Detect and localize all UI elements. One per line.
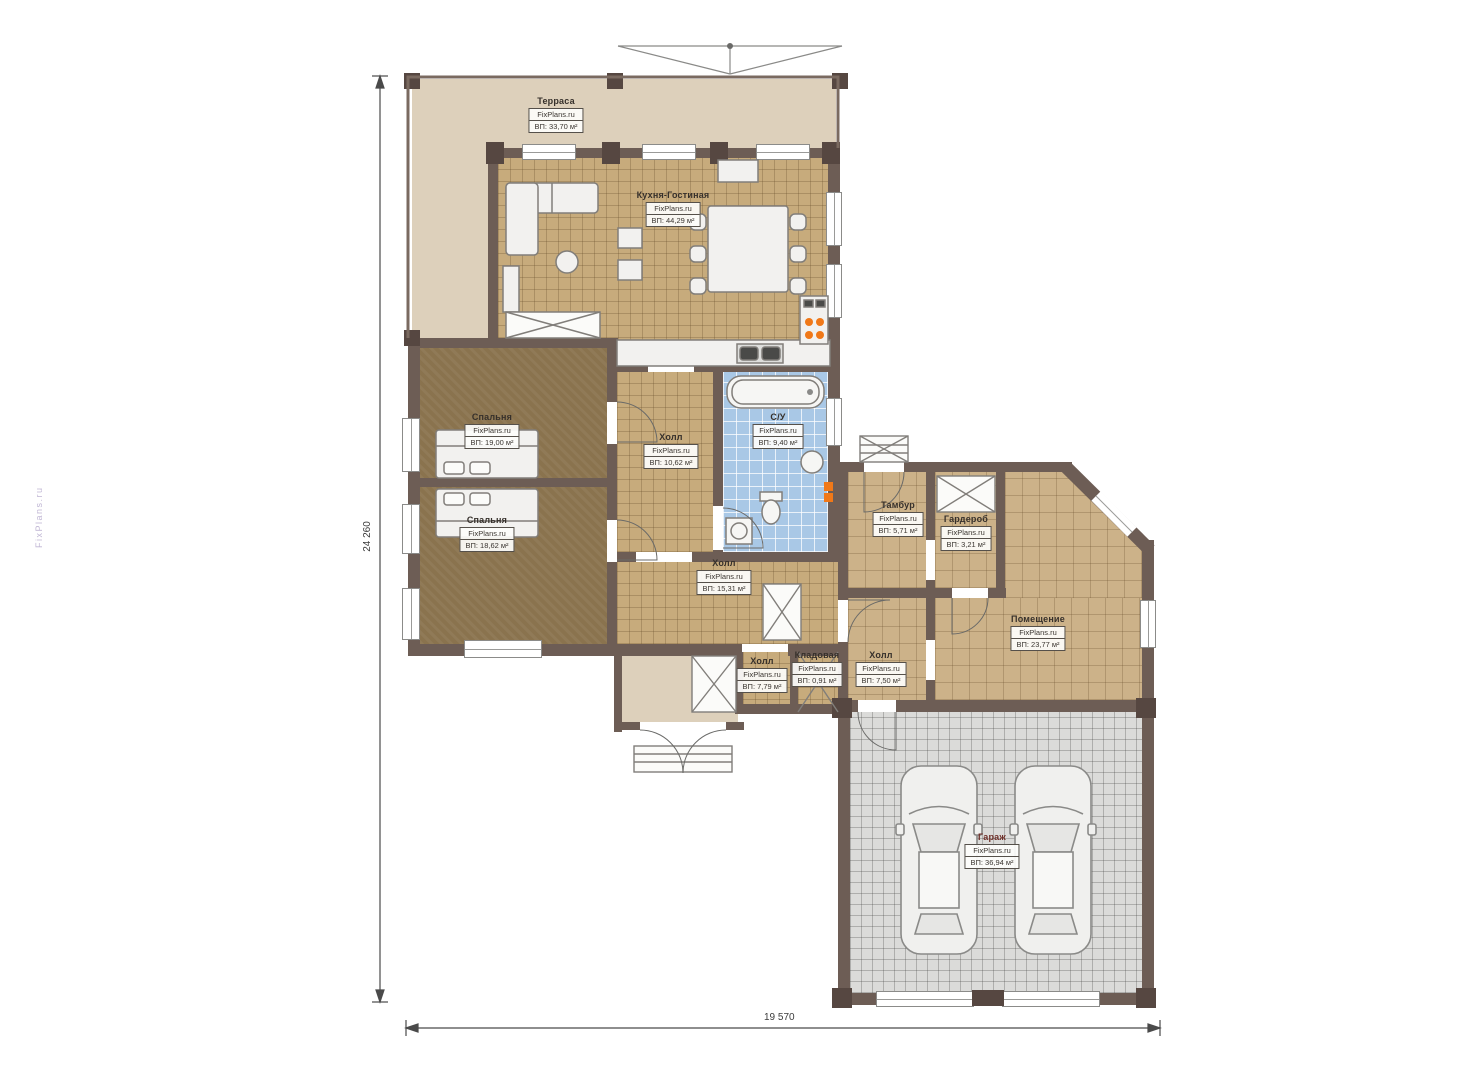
door-opening [858, 700, 896, 712]
canopy-lines [618, 43, 842, 74]
door-opening [636, 552, 692, 562]
pillar [1136, 698, 1156, 718]
porch-steps [634, 746, 732, 772]
room-label-bedroom2: Спальня FixPlans.ruВП: 18,62 м² [459, 515, 514, 553]
wall-segment [607, 362, 838, 372]
wall-segment [607, 338, 617, 654]
pillar [1136, 988, 1156, 1008]
entrance-steps [860, 436, 908, 462]
pillar [832, 988, 852, 1008]
room-kitchen-living-floor [498, 158, 828, 362]
door-opening [648, 362, 694, 372]
pillar [710, 142, 728, 164]
wall-segment [617, 644, 742, 656]
room-label-hall1: Холл FixPlans.ruВП: 10,62 м² [643, 432, 698, 470]
room-label-wardrobe: Гардероб FixPlans.ruВП: 3,21 м² [941, 514, 992, 552]
pillar [486, 142, 504, 164]
door-opening [952, 588, 988, 598]
window [826, 264, 842, 318]
wall-segment [828, 148, 840, 372]
door-opening [607, 520, 617, 562]
room-terrace-floor [412, 148, 488, 338]
window [402, 588, 420, 640]
room-label-bedroom1: Спальня FixPlans.ruВП: 19,00 м² [464, 412, 519, 450]
dimension-height-label: 24 260 [362, 521, 373, 552]
door-opening [640, 722, 726, 730]
door-opening [713, 506, 723, 550]
room-label-hall2: Холл FixPlans.ruВП: 15,31 м² [696, 558, 751, 596]
window [642, 144, 696, 160]
room-utility-floor [1005, 472, 1142, 598]
room-label-bathroom: С/У FixPlans.ruВП: 9,40 м² [753, 412, 804, 450]
door-opening [926, 640, 935, 680]
room-label-pantry: Кладовая FixPlans.ruВП: 0,91 м² [792, 650, 843, 688]
wall-segment [420, 478, 607, 487]
garage-door [1002, 991, 1100, 1007]
floor-plan: Терраса FixPlans.ruВП: 33,70 м² Кухня-Го… [0, 0, 1474, 1080]
porch-floor [622, 656, 738, 726]
room-label-kitchen-living: Кухня-Гостиная FixPlans.ruВП: 44,29 м² [637, 190, 710, 228]
room-label-hall3: Холл FixPlans.ruВП: 7,79 м² [737, 656, 788, 694]
door-opening [607, 402, 617, 444]
wall-segment [408, 338, 618, 348]
pillar [404, 330, 420, 346]
pillar [602, 142, 620, 164]
pillar [404, 73, 420, 89]
door-opening [926, 540, 935, 580]
window [826, 398, 842, 446]
room-label-garage: Гараж FixPlans.ruВП: 36,94 м² [964, 832, 1019, 870]
room-terrace-floor [412, 79, 836, 148]
room-label-hall4: Холл FixPlans.ruВП: 7,50 м² [856, 650, 907, 688]
window [522, 144, 576, 160]
wall-segment [488, 148, 498, 344]
room-bedroom2-floor [420, 487, 607, 644]
window [826, 192, 842, 246]
window [402, 504, 420, 554]
window [1140, 600, 1156, 648]
pillar [607, 73, 623, 89]
pillar [832, 73, 848, 89]
room-label-tambour: Тамбур FixPlans.ruВП: 5,71 м² [873, 500, 924, 538]
window [402, 418, 420, 472]
door-opening [864, 462, 904, 472]
wall-segment [614, 644, 622, 732]
window [756, 144, 810, 160]
room-bathroom-floor [723, 372, 828, 552]
pillar [832, 698, 852, 718]
wall-segment [735, 704, 846, 714]
window [464, 640, 542, 658]
dimension-width-label: 19 570 [764, 1012, 795, 1023]
garage-door [876, 991, 974, 1007]
wall-segment [1142, 700, 1154, 1005]
wall-segment [838, 700, 850, 1005]
door-opening [838, 600, 848, 642]
wall-segment [996, 472, 1005, 598]
room-label-terrace: Терраса FixPlans.ruВП: 33,70 м² [528, 96, 583, 134]
room-label-utility: Помещение FixPlans.ruВП: 23,77 м² [1010, 614, 1065, 652]
pillar [972, 990, 1004, 1006]
watermark: FixPlans.ru [34, 486, 44, 548]
pillar [822, 142, 840, 164]
